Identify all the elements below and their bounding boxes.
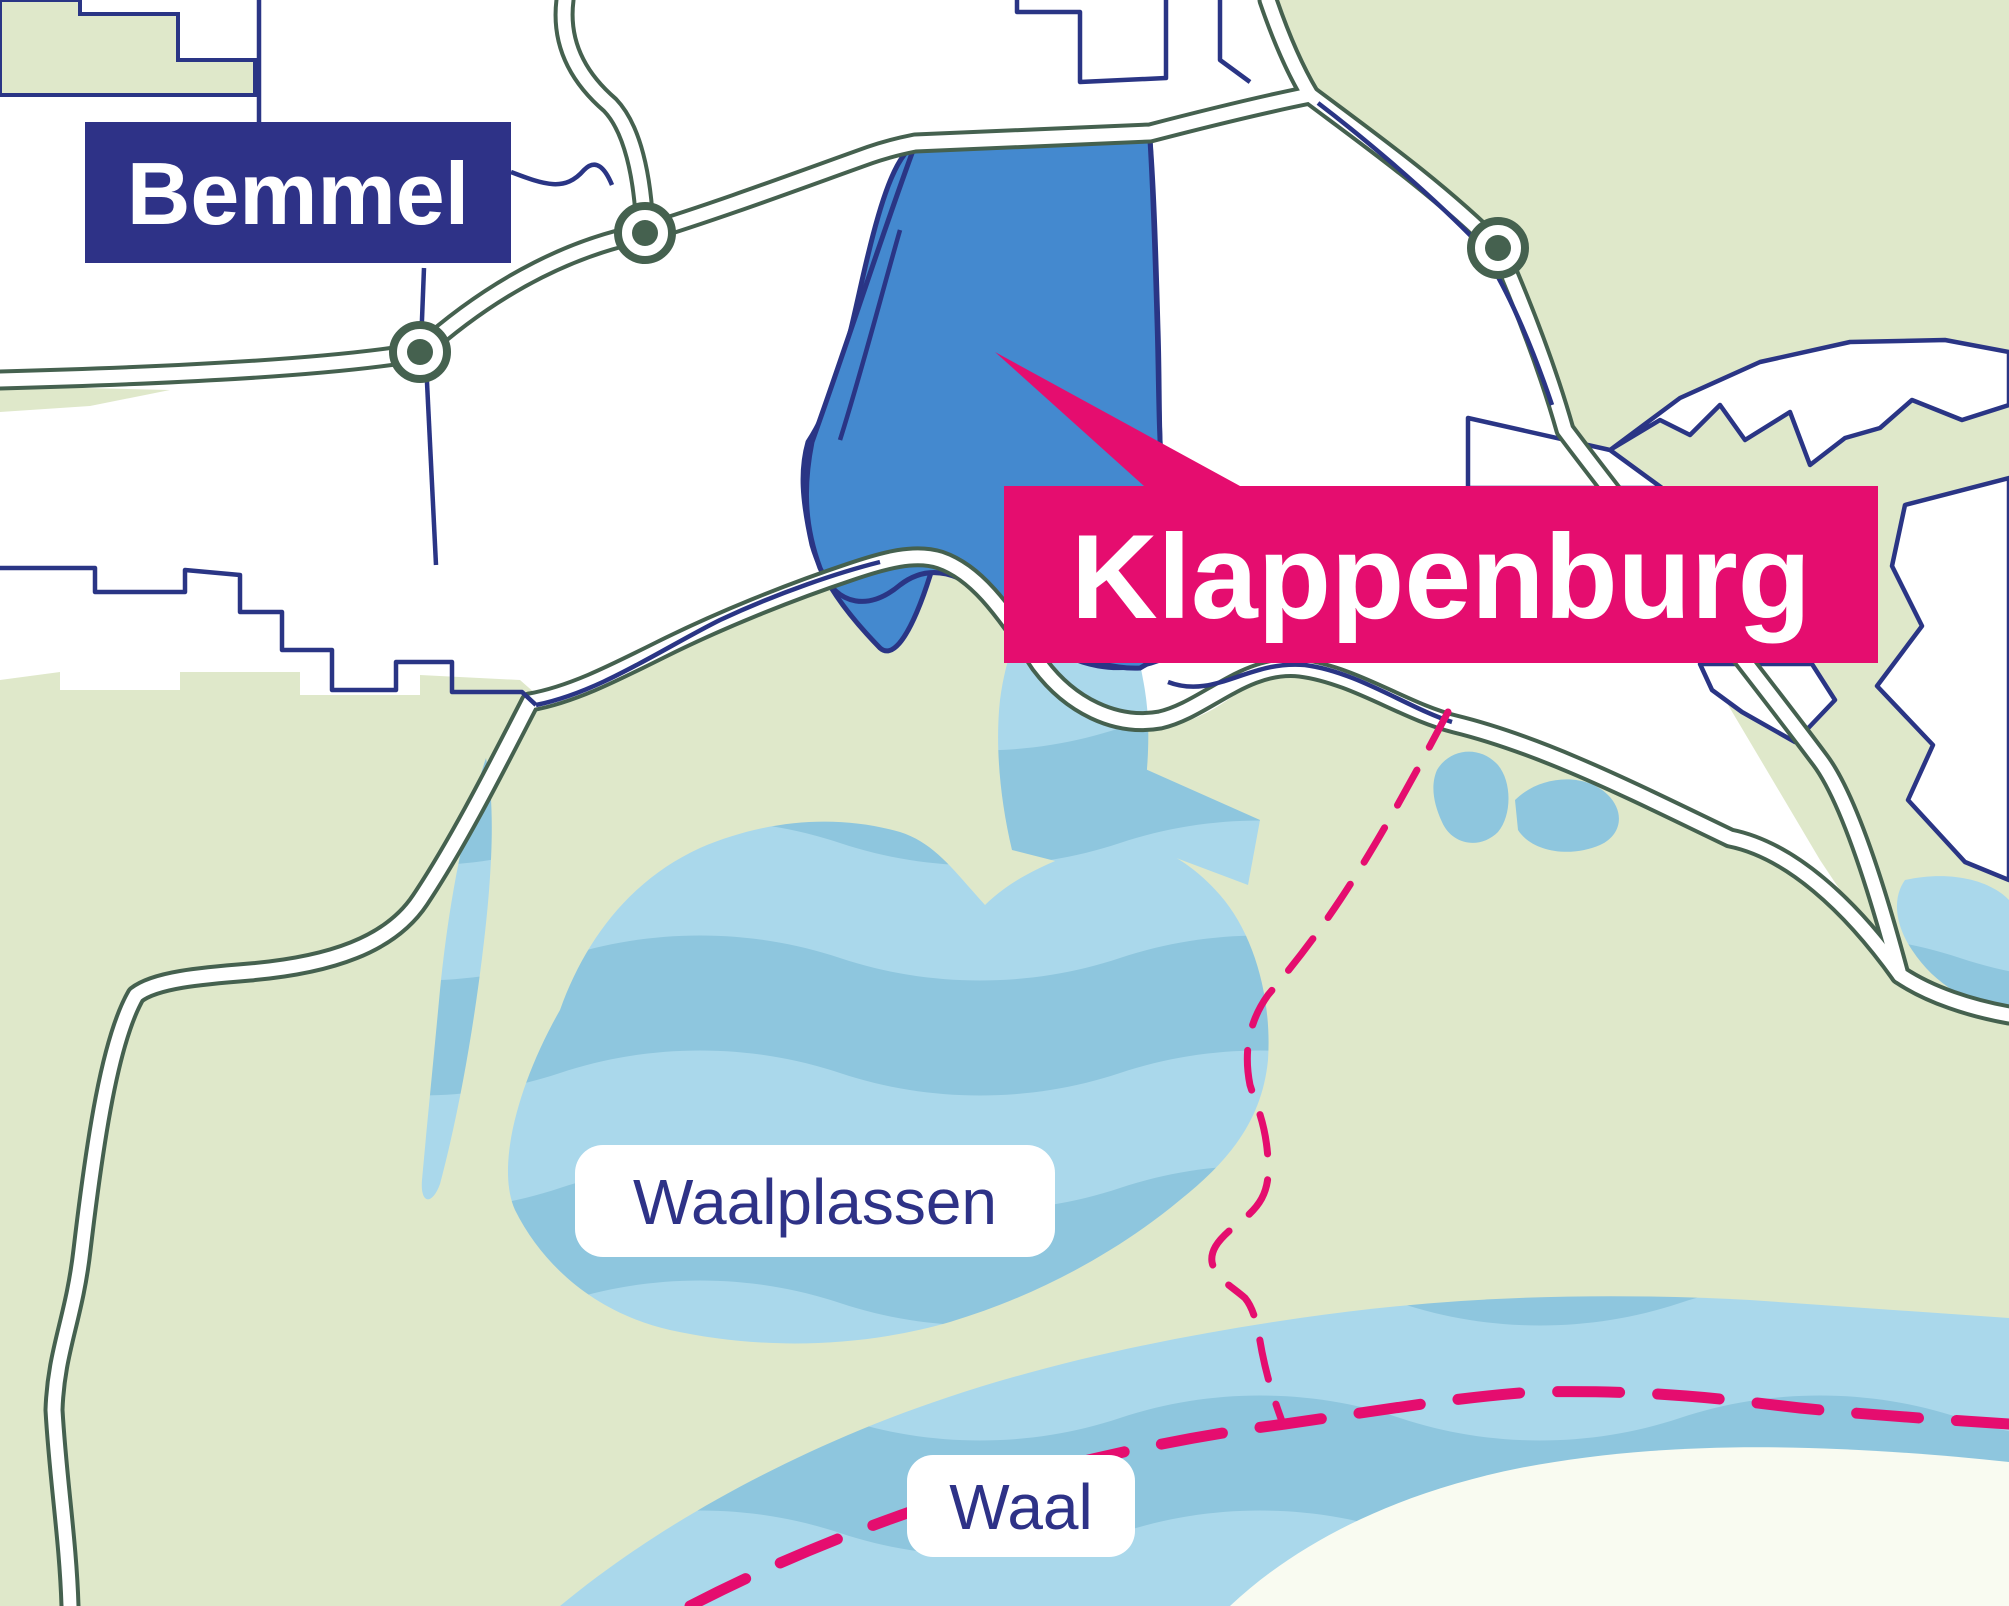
roundabout-dot [407, 339, 433, 365]
town-label-bemmel: Bemmel [85, 122, 511, 263]
waalplassen-label-text: Waalplassen [633, 1166, 997, 1238]
roundabout-dot [1485, 235, 1511, 261]
river-label-waal: Waal [907, 1455, 1135, 1557]
klappenburg-label-text: Klappenburg [1071, 510, 1811, 644]
bemmel-label-text: Bemmel [127, 144, 469, 243]
waal-label-text: Waal [949, 1471, 1092, 1543]
map-stage: Bemmel Klappenburg Waalplassen Waal [0, 0, 2009, 1606]
lakes-label-waalplassen: Waalplassen [575, 1145, 1055, 1257]
roundabout-dot [632, 220, 658, 246]
map-canvas: Bemmel Klappenburg Waalplassen Waal [0, 0, 2009, 1606]
